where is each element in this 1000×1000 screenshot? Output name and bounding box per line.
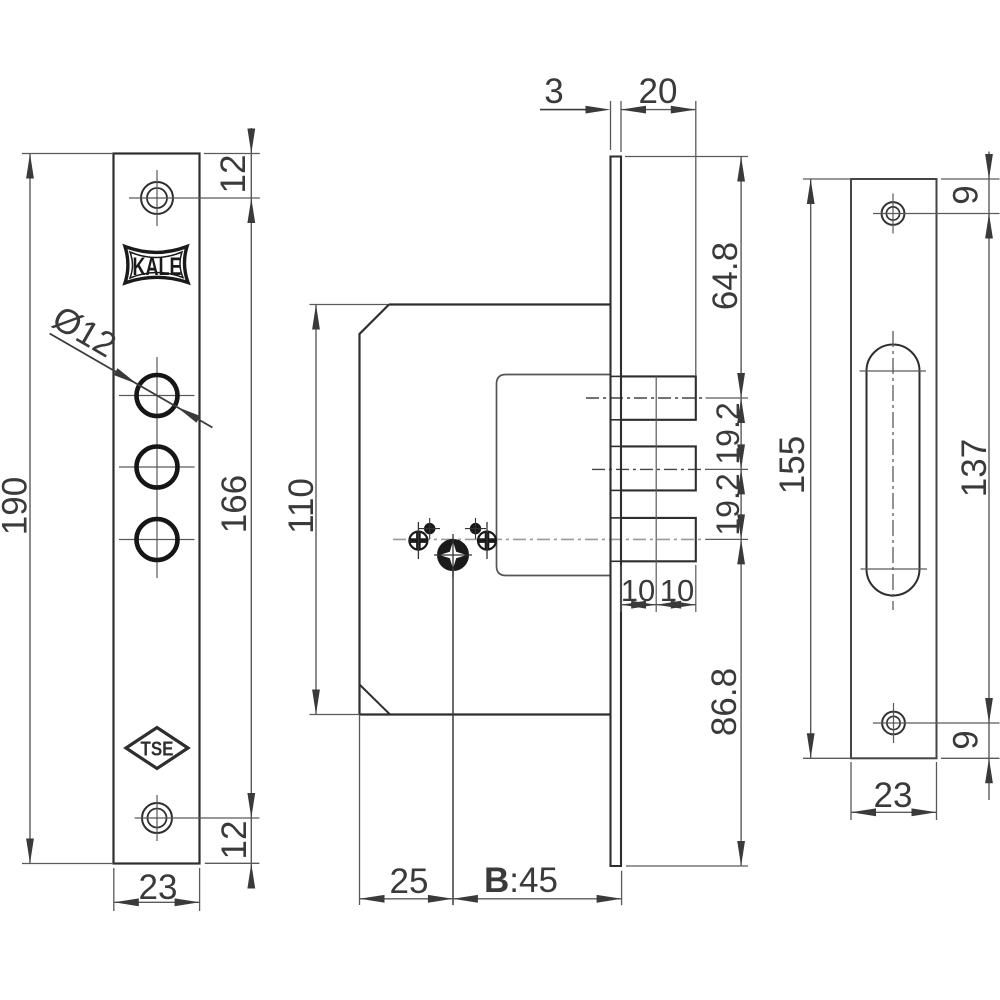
- svg-text:12: 12: [215, 821, 254, 860]
- svg-text:64.8: 64.8: [706, 242, 745, 310]
- svg-text:155: 155: [773, 436, 812, 494]
- svg-text:10: 10: [660, 573, 694, 608]
- svg-text:12: 12: [214, 155, 253, 194]
- svg-text:190: 190: [0, 477, 35, 535]
- svg-text:19.2: 19.2: [710, 473, 746, 535]
- svg-text:110: 110: [282, 478, 321, 534]
- svg-text:23: 23: [139, 868, 178, 907]
- svg-text:KALE: KALE: [133, 252, 182, 281]
- svg-text:20: 20: [639, 72, 678, 111]
- svg-text:TSE: TSE: [140, 737, 173, 760]
- svg-text:9: 9: [947, 730, 986, 749]
- svg-text:25: 25: [390, 862, 429, 901]
- svg-text:137: 137: [955, 439, 994, 497]
- svg-text:10: 10: [621, 573, 655, 608]
- svg-text:86.8: 86.8: [705, 668, 744, 736]
- svg-text:B:45: B:45: [484, 861, 558, 900]
- svg-text:166: 166: [215, 475, 254, 533]
- svg-text:9: 9: [947, 185, 986, 204]
- svg-text:23: 23: [874, 776, 913, 815]
- svg-text:3: 3: [544, 72, 563, 111]
- svg-text:19.2: 19.2: [710, 402, 746, 464]
